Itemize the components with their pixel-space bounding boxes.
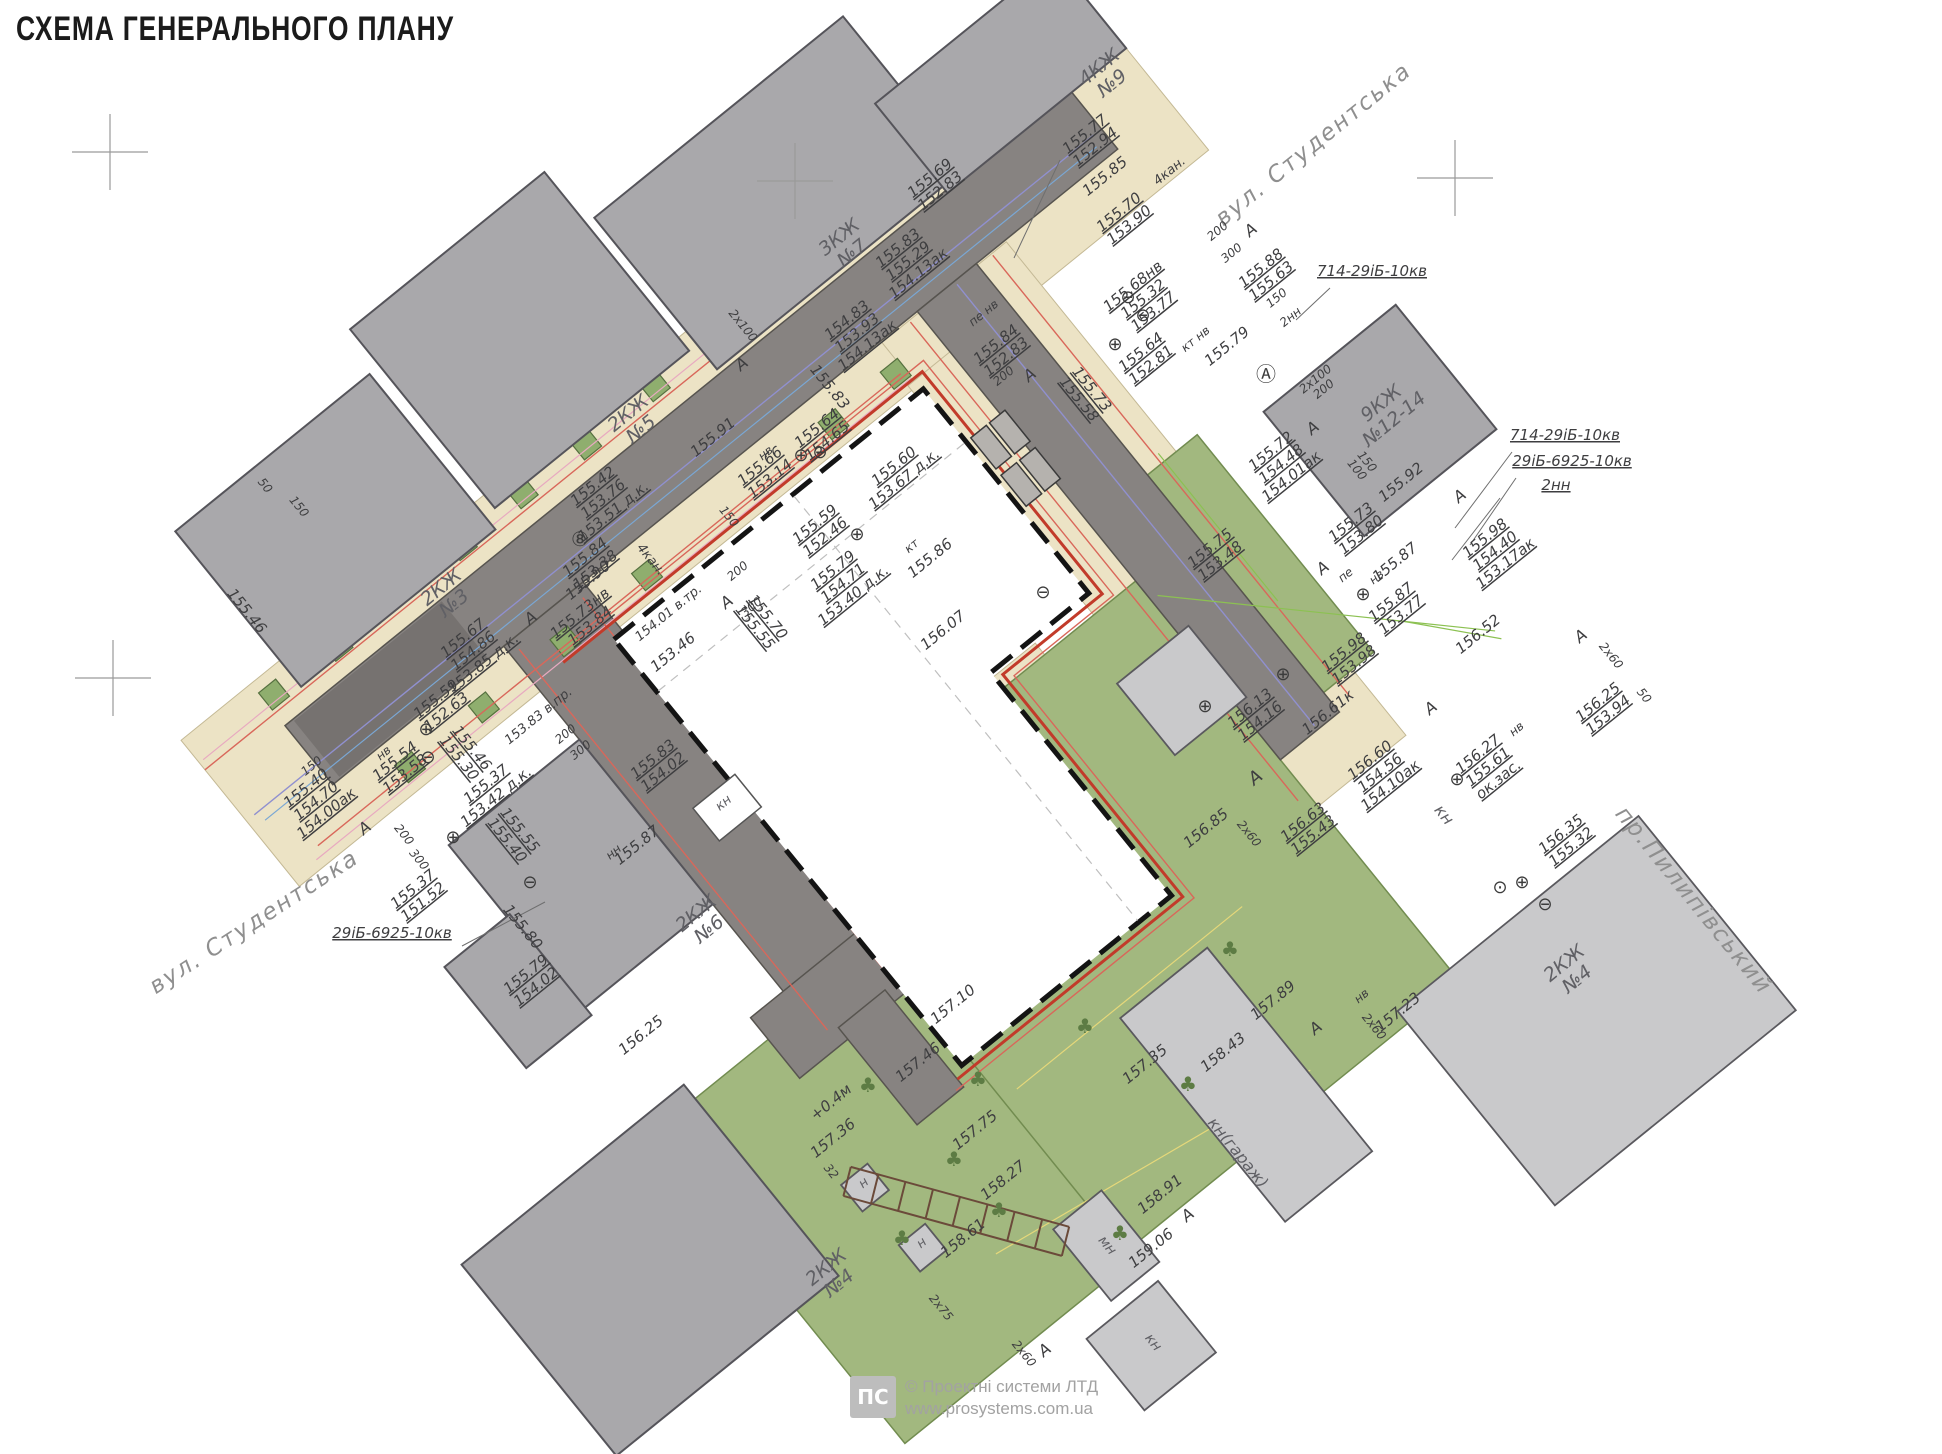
elevation-label: 2нн xyxy=(1277,304,1304,330)
manhole-icon: ⊖ xyxy=(1135,305,1150,326)
elevation-label: А xyxy=(1449,485,1470,507)
tree-icon: ♣ xyxy=(859,1073,877,1097)
elevation-label: пе xyxy=(1335,565,1356,585)
tree-icon: ♣ xyxy=(969,1067,987,1091)
tree-icon: ♣ xyxy=(1111,1221,1129,1245)
genplan-page: вул. Студентськавул. Студентськапр.Пилип… xyxy=(0,0,1942,1454)
manhole-icon: ⊖ xyxy=(812,442,827,463)
manhole-icon: ⊙ xyxy=(1492,877,1507,898)
manhole-icon: ⊕ xyxy=(418,719,433,740)
watermark-url: www.prosystems.com.ua xyxy=(905,1398,1098,1420)
watermark-text: © Проектні системи ЛТД www.prosystems.co… xyxy=(905,1376,1098,1420)
elevation-label: А xyxy=(1312,557,1333,579)
elevation-label: 200 xyxy=(391,821,417,848)
page-title-text: СХЕМА ГЕНЕРАЛЬНОГО ПЛАНУ xyxy=(16,10,454,49)
cable-note-label: 29іБ-6925-10кв xyxy=(332,924,452,942)
cable-note-label: 2нн xyxy=(1541,476,1570,494)
manhole-icon: ⊕ xyxy=(1107,334,1122,355)
elevation-label: 155.37151.52 xyxy=(387,865,450,925)
cable-note-label: 714-29іБ-10кв xyxy=(1510,426,1620,444)
leader-line xyxy=(1455,452,1512,528)
manhole-icon: ⊕ xyxy=(445,827,460,848)
manhole-icon: ⊕ xyxy=(1197,696,1212,717)
cable-note-label: 714-29іБ-10кв xyxy=(1317,262,1427,280)
grid-cross-icon xyxy=(75,640,151,716)
tree-icon: ♣ xyxy=(1076,1014,1094,1038)
manhole-icon: Ⓐ xyxy=(1256,362,1276,386)
prosystems-logo: ПС xyxy=(850,1376,896,1418)
elevation-label: 300 xyxy=(1218,240,1245,266)
elevation-label: 155.98154.40153.17ак xyxy=(1452,509,1539,593)
elevation-label: А xyxy=(1570,625,1591,647)
elevation-label: 50 xyxy=(1634,685,1655,706)
watermark-copyright: © Проектні системи ЛТД xyxy=(905,1376,1098,1398)
building-2kzh-4-east xyxy=(1398,816,1796,1205)
tree-icon: ♣ xyxy=(1179,1072,1197,1096)
manhole-icon: ⊕ xyxy=(849,524,864,545)
elevation-label: 2x60 xyxy=(1596,639,1626,671)
manhole-icon: ⊖ xyxy=(522,872,537,893)
elevation-label: 156.25153.94 xyxy=(1572,679,1634,739)
manhole-icon: ⊕ xyxy=(1275,664,1290,685)
elevation-label: А xyxy=(1240,219,1261,241)
grid-cross-icon xyxy=(72,114,148,190)
street-name-label: вул. Студентська xyxy=(145,845,364,1000)
elevation-label: 155.68нв155.32153.77 xyxy=(1100,257,1187,341)
manhole-icon: ⊕ xyxy=(793,445,808,466)
tree-icon: ♣ xyxy=(893,1226,911,1250)
tree-icon: ♣ xyxy=(1221,937,1239,961)
watermark: ПС © Проектні системи ЛТД www.prosystems… xyxy=(850,1376,1098,1420)
cable-note-label: 29іБ-6925-10кв xyxy=(1512,452,1632,470)
elevation-label: 156.52 xyxy=(1452,611,1504,658)
tree-icon: ♣ xyxy=(945,1147,963,1171)
manhole-icon: ⊕ xyxy=(1355,584,1370,605)
street-name-label: вул. Студентська xyxy=(1211,58,1417,232)
elevation-label: А xyxy=(1420,697,1441,719)
grid-cross-icon xyxy=(1417,140,1493,216)
elevation-label: 156.25 xyxy=(615,1012,667,1059)
elevation-label: нв xyxy=(1506,719,1526,739)
page-title: СХЕМА ГЕНЕРАЛЬНОГО ПЛАНУ xyxy=(16,10,577,49)
manhole-icon: ⊕ xyxy=(1449,769,1464,790)
manhole-icon: ⊕ xyxy=(1514,872,1529,893)
elevation-label: 156.27155.61ок.зас. xyxy=(1452,730,1525,803)
manhole-icon: ⑧ xyxy=(571,527,589,551)
building-label: кн xyxy=(1431,801,1458,829)
manhole-icon: ⊖ xyxy=(1537,894,1552,915)
manhole-icon: ⊖ xyxy=(1035,582,1050,603)
site-plan-drawing: вул. Студентськавул. Студентськапр.Пилип… xyxy=(0,0,1942,1454)
manhole-icon: ⊖ xyxy=(1120,287,1135,308)
manhole-icon: ⊖ xyxy=(420,747,435,768)
plan-rotated-layer xyxy=(0,0,1899,1454)
elevation-label: 155.64152.81 xyxy=(1115,329,1177,389)
tree-icon: ♣ xyxy=(990,1198,1008,1222)
